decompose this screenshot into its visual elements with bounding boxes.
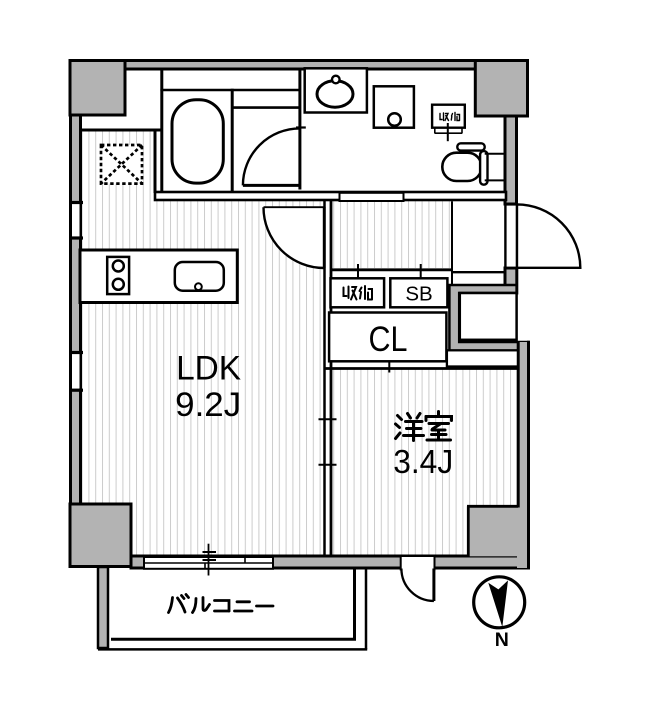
svg-text:LDK: LDK xyxy=(176,350,241,388)
svg-text:N: N xyxy=(495,629,509,651)
svg-text:3.4J: 3.4J xyxy=(393,443,453,480)
svg-text:CL: CL xyxy=(369,320,408,359)
svg-text:9.2J: 9.2J xyxy=(175,386,241,424)
svg-text:SB: SB xyxy=(405,282,432,305)
